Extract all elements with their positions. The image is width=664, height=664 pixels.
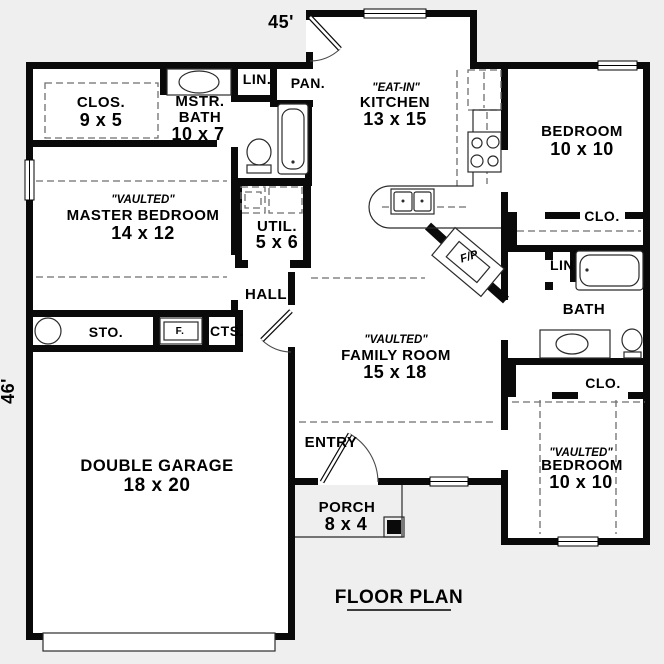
bath2-label: BATH: [563, 301, 606, 318]
master-bath-tub: [278, 104, 308, 174]
linen1-label: LIN.: [243, 71, 271, 87]
garage-label: DOUBLE GARAGE: [80, 457, 233, 475]
bedroom2-window: [598, 61, 637, 70]
bedroom3-size: 10 x 10: [549, 472, 613, 492]
master-bath-size: 10 x 7: [171, 124, 224, 144]
stove: [468, 132, 501, 172]
garage-size: 18 x 20: [124, 475, 191, 496]
kitchen-window: [364, 9, 426, 18]
plan-width-label: 45': [268, 12, 294, 32]
master-bath-toilet: [247, 139, 271, 173]
coats-label: CTS.: [210, 323, 244, 339]
closet3-label: CLO.: [585, 375, 620, 391]
linen2-label: LIN: [550, 257, 574, 273]
kitchen-note: "EAT-IN": [372, 82, 420, 94]
master-closet-size: 9 x 5: [80, 110, 123, 130]
kitchen-size: 13 x 15: [363, 109, 427, 129]
garage-door: [43, 633, 275, 651]
plan-height-label: 46': [0, 378, 18, 404]
porch-size: 8 x 4: [325, 514, 368, 534]
kitchen-sink: [391, 189, 434, 214]
master-bedroom-size: 14 x 12: [111, 223, 175, 243]
utility-size: 5 x 6: [256, 232, 299, 252]
family-room-note: "VAULTED": [364, 334, 428, 346]
family-room-size: 15 x 18: [363, 362, 427, 382]
storage-label: STO.: [89, 324, 123, 340]
master-bath-vanity: [167, 69, 231, 95]
family-room-window: [430, 477, 468, 486]
bath2-vanity: [540, 330, 610, 358]
floor-plan-canvas: 45' 46' CLOS. 9 x 5 MSTR. BATH 10 x 7 LI…: [0, 0, 664, 664]
master-bath-label1: MSTR.: [175, 93, 224, 110]
pantry-label: PAN.: [291, 75, 325, 91]
master-bedroom-note: "VAULTED": [111, 194, 175, 206]
hall-label: HALL: [245, 286, 287, 303]
bedroom2-size: 10 x 10: [550, 139, 614, 159]
bath2-tub: [576, 251, 643, 290]
bedroom3-window: [558, 537, 598, 546]
master-closet-label: CLOS.: [77, 94, 125, 111]
water-heater: [35, 318, 61, 344]
plan-title: FLOOR PLAN: [335, 587, 464, 608]
master-bedroom-label: MASTER BEDROOM: [67, 207, 220, 224]
bath2-toilet: [622, 329, 642, 358]
closet2-label: CLO.: [584, 208, 619, 224]
bedroom2-label: BEDROOM: [541, 123, 623, 140]
furnace-label: F.: [176, 326, 185, 337]
entry-label: ENTRY: [305, 434, 358, 451]
master-bedroom-window: [25, 160, 34, 200]
